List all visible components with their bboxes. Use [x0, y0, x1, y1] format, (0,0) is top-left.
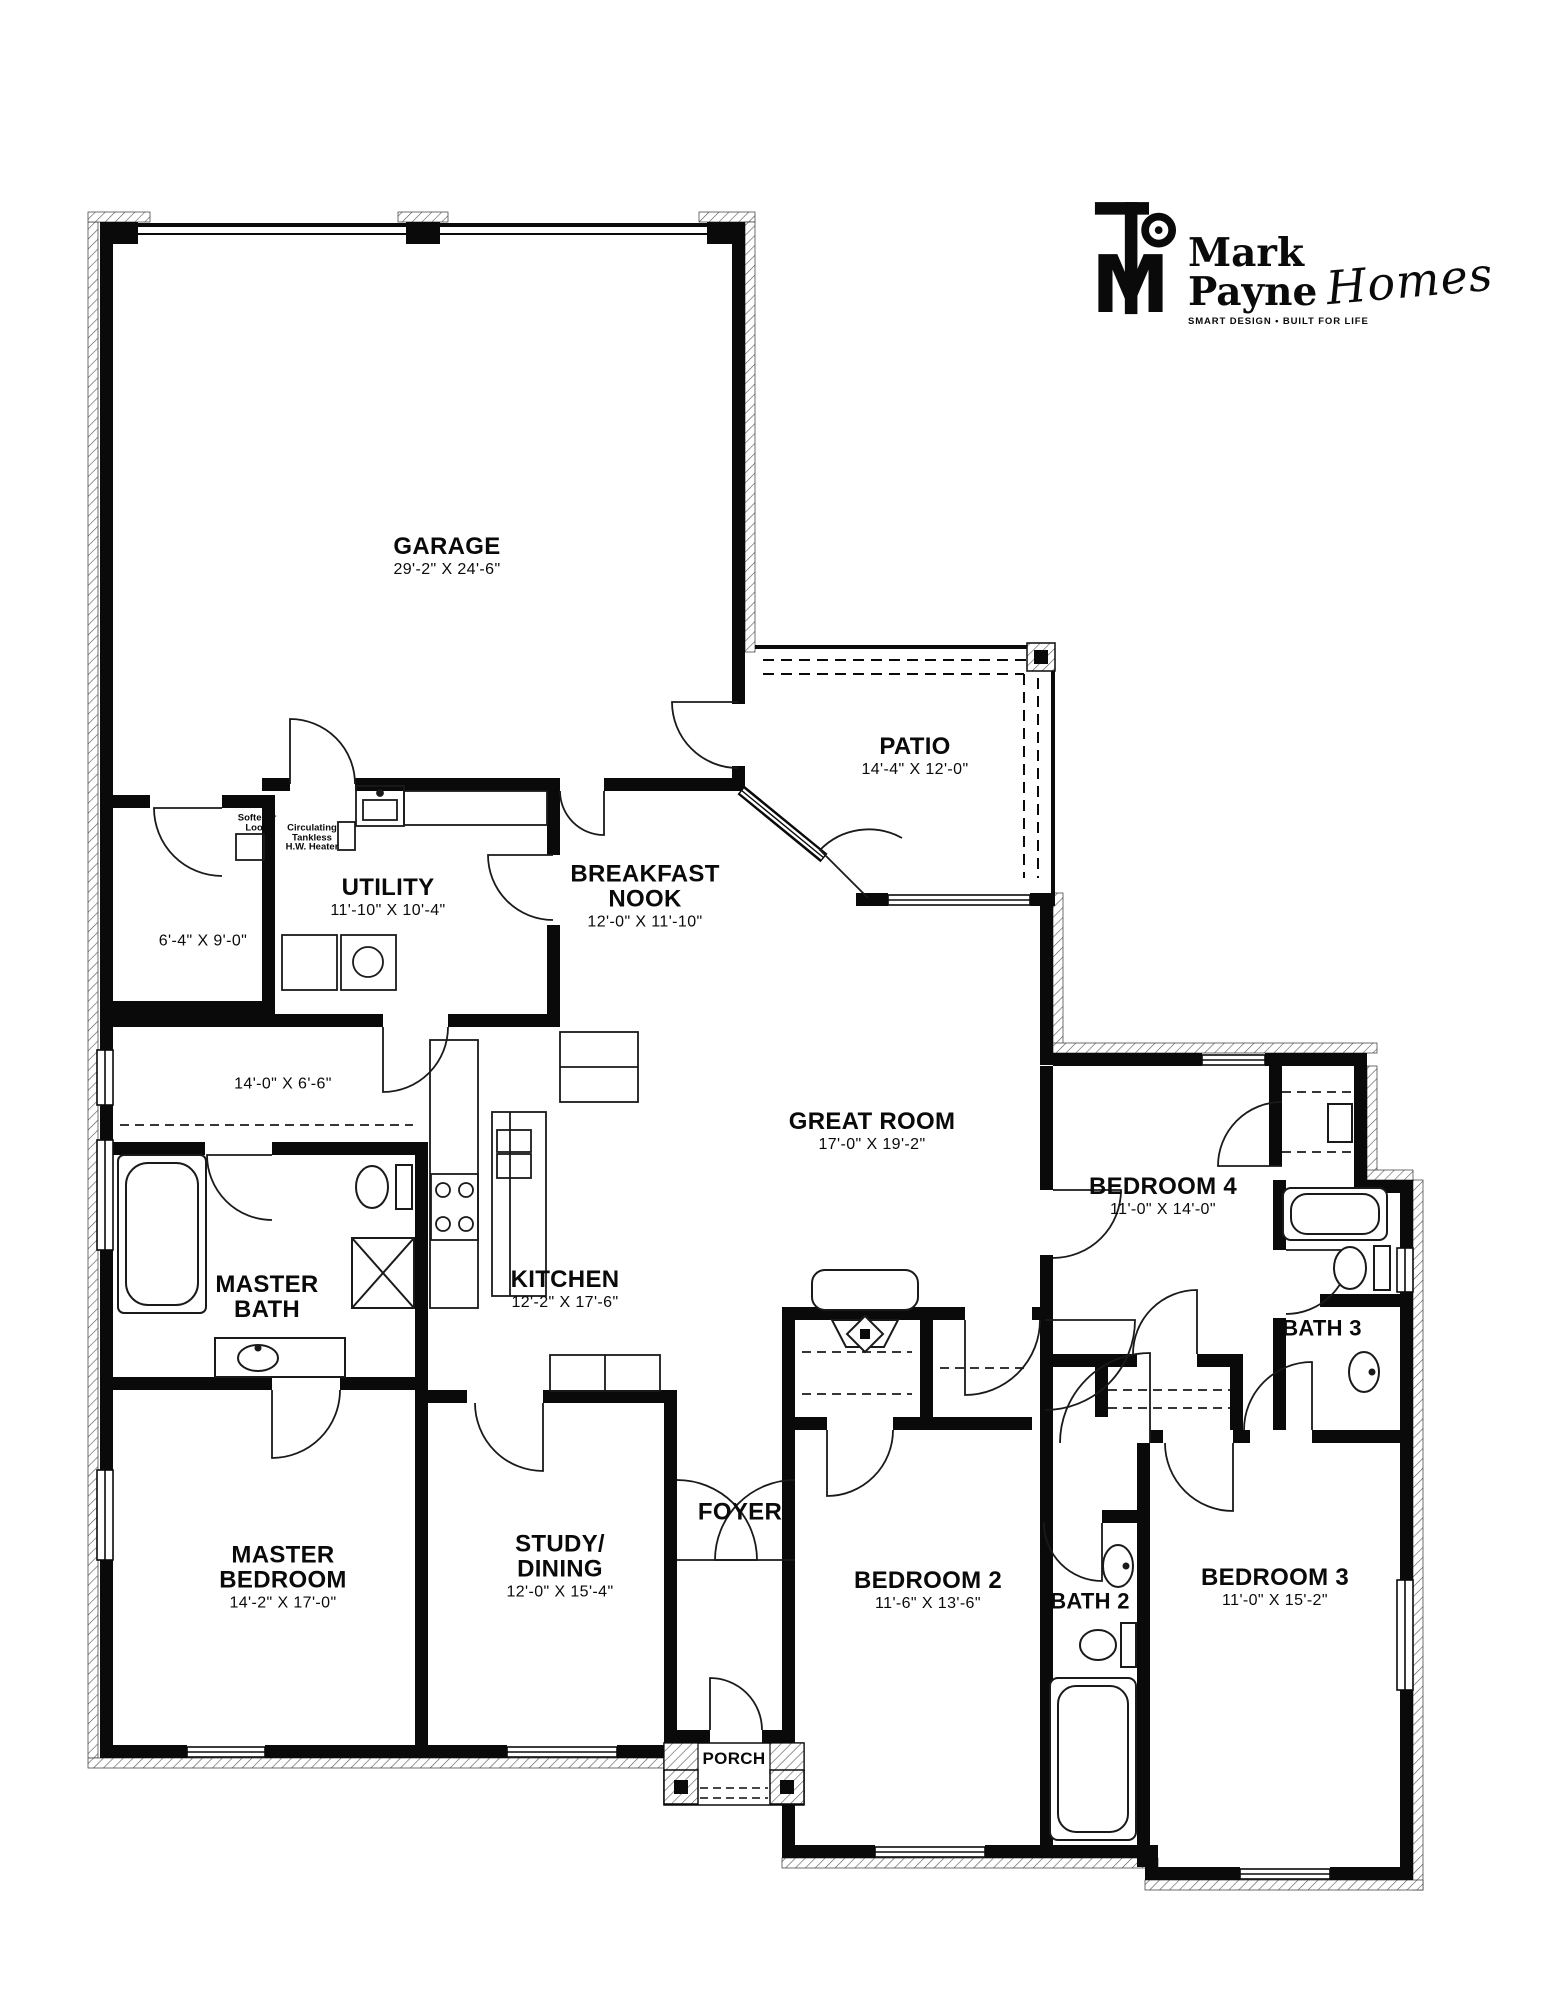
room-name: BEDROOM 2 [854, 1568, 1002, 1593]
windows [97, 790, 1413, 1879]
room-label-bedroom-3: BEDROOM 3 11'-0" X 15'-2" [1201, 1565, 1349, 1611]
logo-script-word: Homes [1324, 251, 1495, 311]
room-label-patio: PATIO 14'-4" X 12'-0" [861, 734, 968, 780]
room-dims: 11'-0" X 15'-2" [1201, 1591, 1349, 1611]
room-label-breakfast-nook: BREAKFAST NOOK 12'-0" X 11'-10" [570, 861, 719, 932]
brick-hatching [88, 212, 1423, 1890]
room-dims: 12'-0" X 15'-4" [506, 1583, 613, 1603]
room-name: BATH 2 [1050, 1589, 1130, 1612]
room-dims: 11'-6" X 13'-6" [854, 1594, 1002, 1614]
room-dims: 17'-0" X 19'-2" [789, 1135, 956, 1155]
room-name: MASTER [215, 1272, 318, 1297]
room-label-master-bedroom: MASTER BEDROOM 14'-2" X 17'-0" [219, 1542, 346, 1613]
fireplace-media-niche [812, 1270, 918, 1352]
room-name: UTILITY [330, 875, 445, 900]
room-name: MASTER [219, 1542, 346, 1567]
room-label-foyer: FOYER [698, 1499, 782, 1524]
room-dims: 12'-2" X 17'-6" [511, 1293, 620, 1313]
room-label-master-bath: MASTER BATH [215, 1272, 318, 1322]
room-label-hallway: 14'-0" X 6'-6" [234, 1074, 332, 1095]
room-label-porch: PORCH [703, 1750, 766, 1768]
room-dims: 6'-4" X 9'-0" [159, 932, 247, 952]
room-label-study-dining: STUDY/ DINING 12'-0" X 15'-4" [506, 1531, 613, 1602]
room-name: BEDROOM 3 [1201, 1565, 1349, 1590]
room-dims: 29'-2" X 24'-6" [393, 560, 500, 580]
room-label-bedroom-2: BEDROOM 2 11'-6" X 13'-6" [854, 1568, 1002, 1614]
logo-monogram-icon: M [1093, 198, 1178, 324]
room-dims: 14'-0" X 6'-6" [234, 1075, 332, 1095]
room-name: PATIO [861, 734, 968, 759]
floor-plan-page: GARAGE 29'-2" X 24'-6" PATIO 14'-4" X 12… [0, 0, 1545, 2000]
room-name: STUDY/ [506, 1531, 613, 1556]
room-name: FOYER [698, 1499, 782, 1524]
room-label-kitchen: KITCHEN 12'-2" X 17'-6" [511, 1267, 620, 1313]
note-line: Loop [238, 823, 277, 833]
room-dims: 12'-0" X 11'-10" [570, 913, 719, 933]
note-softener-loop: Softener Loop [238, 813, 277, 832]
room-name: DINING [506, 1557, 613, 1582]
note-tankless-heater: Circulating Tankless H.W. Heater [286, 823, 339, 852]
room-name: NOOK [570, 887, 719, 912]
room-name: GREAT ROOM [789, 1109, 956, 1134]
room-name: BATH 3 [1282, 1316, 1362, 1339]
room-label-garage: GARAGE 29'-2" X 24'-6" [393, 534, 500, 580]
room-label-storage: 6'-4" X 9'-0" [159, 931, 247, 952]
room-dims: 14'-4" X 12'-0" [861, 760, 968, 780]
room-name: BREAKFAST [570, 861, 719, 886]
room-name: BEDROOM 4 [1089, 1174, 1237, 1199]
room-name: KITCHEN [511, 1267, 620, 1292]
room-label-utility: UTILITY 11'-10" X 10'-4" [330, 875, 445, 921]
room-label-bath-2: BATH 2 [1050, 1589, 1130, 1612]
room-name: BEDROOM [219, 1568, 346, 1593]
logo-tagline: SMART DESIGN • BUILT FOR LIFE [1188, 316, 1438, 327]
room-name: PORCH [703, 1750, 766, 1768]
room-name: BATH [215, 1297, 318, 1322]
room-label-bedroom-4: BEDROOM 4 11'-0" X 14'-0" [1089, 1174, 1237, 1220]
room-name: GARAGE [393, 534, 500, 559]
room-label-great-room: GREAT ROOM 17'-0" X 19'-2" [789, 1109, 956, 1155]
logo-monogram-letter: M [1093, 239, 1170, 324]
room-dims: 11'-0" X 14'-0" [1089, 1200, 1237, 1220]
note-line: H.W. Heater [286, 843, 339, 853]
room-dims: 11'-10" X 10'-4" [330, 901, 445, 921]
room-dims: 14'-2" X 17'-0" [219, 1594, 346, 1614]
builder-logo: M Mark Payne SMART DESIGN • BUILT FOR LI… [1093, 198, 1438, 327]
room-label-bath-3: BATH 3 [1282, 1316, 1362, 1339]
